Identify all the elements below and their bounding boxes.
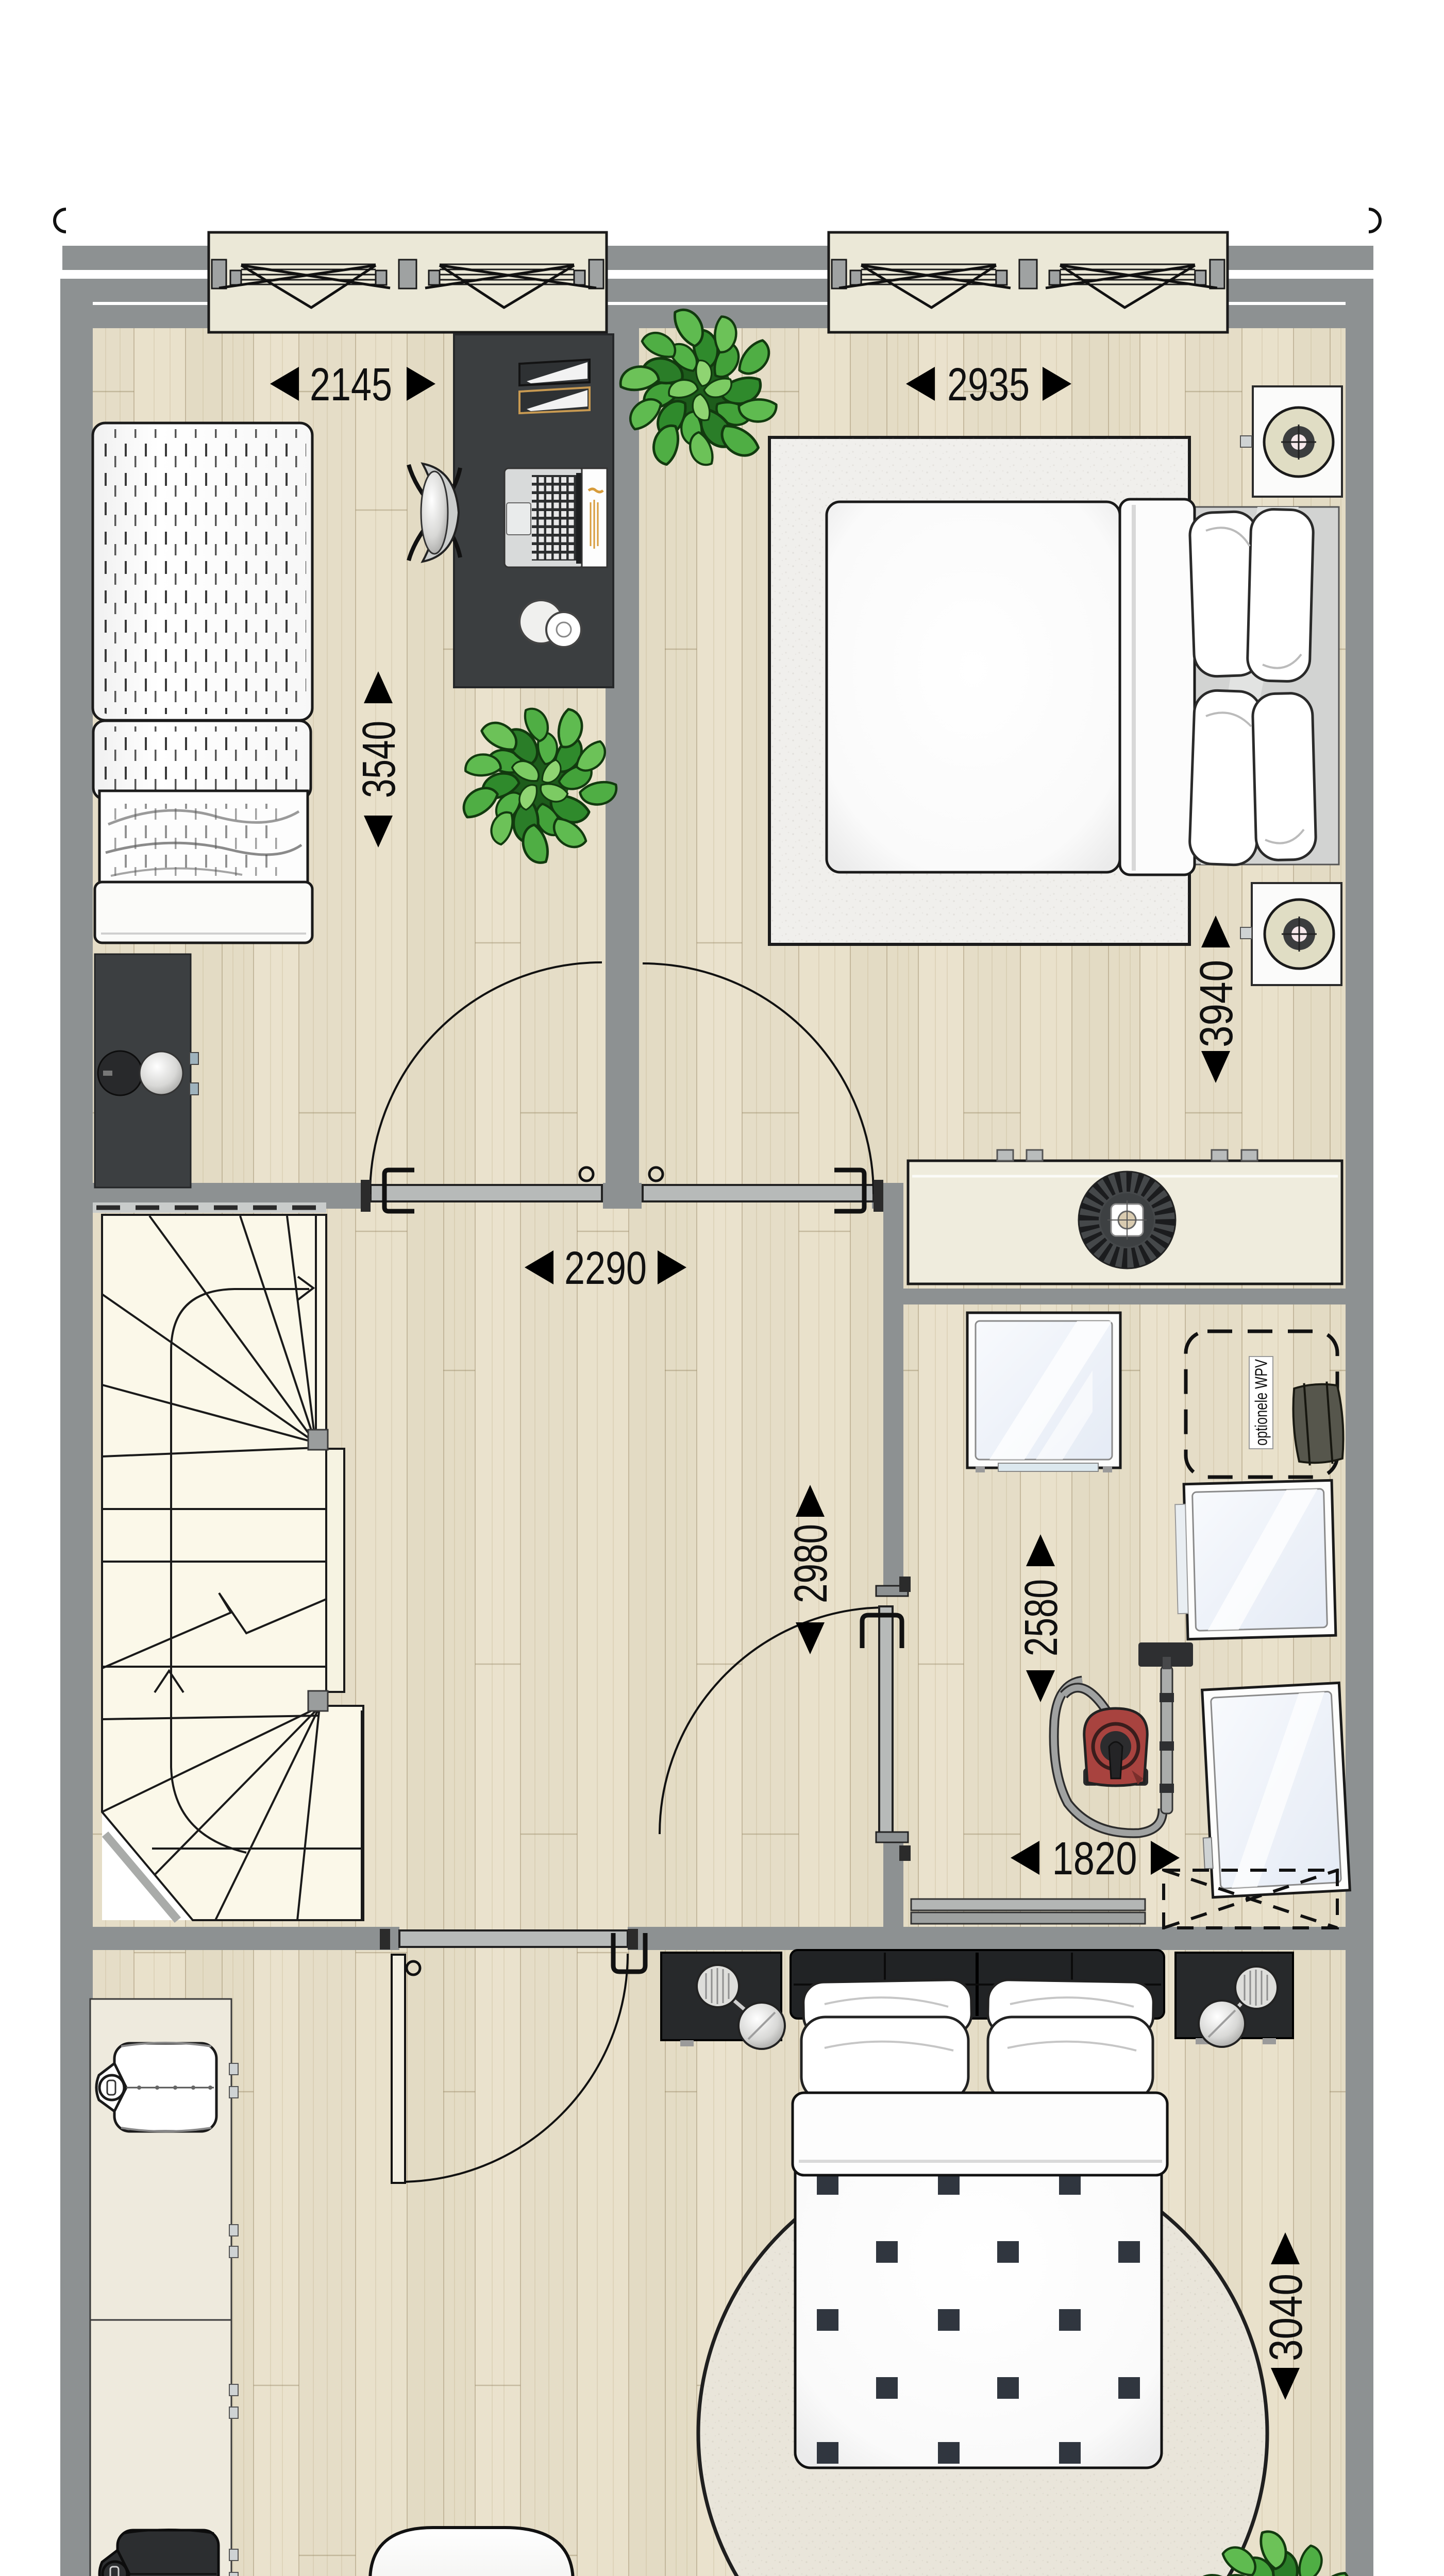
svg-text:3040: 3040	[1261, 2274, 1312, 2361]
svg-text:2580: 2580	[1016, 1579, 1067, 1656]
svg-text:2290: 2290	[564, 1243, 647, 1294]
svg-text:2935: 2935	[947, 359, 1030, 411]
svg-text:2980: 2980	[785, 1524, 837, 1603]
svg-text:1820: 1820	[1052, 1833, 1137, 1885]
svg-text:3540: 3540	[354, 721, 405, 798]
svg-text:optionele WPV: optionele WPV	[1252, 1359, 1271, 1446]
svg-text:3940: 3940	[1191, 960, 1242, 1047]
svg-text:2145: 2145	[310, 359, 392, 411]
